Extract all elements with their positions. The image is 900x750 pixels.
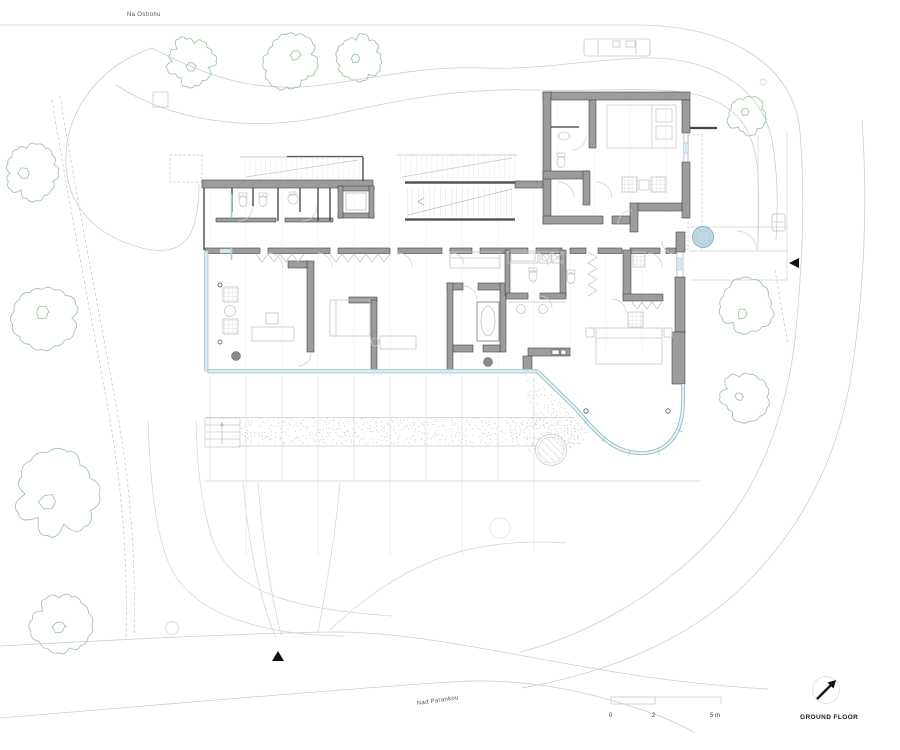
floor-title: GROUND FLOOR <box>800 714 858 721</box>
tree <box>719 277 774 334</box>
armchair <box>628 312 643 327</box>
entry-pad-dashed <box>170 155 202 182</box>
scale-tick-0: 0 <box>609 713 613 719</box>
armchair <box>651 177 666 192</box>
bed-2 <box>330 300 370 336</box>
bed-guest <box>607 105 676 148</box>
tree <box>166 37 216 88</box>
scale-bar <box>611 697 721 704</box>
parked-car <box>584 39 650 56</box>
tree <box>15 448 100 537</box>
armchair <box>223 319 238 334</box>
central-staircase <box>405 183 515 220</box>
wardrobe-zigzags <box>256 252 662 309</box>
north-indicator <box>813 677 840 704</box>
site-plan-drawing: Na Ostrohu Nad Paťankou GROUND FLOOR 0 2… <box>0 0 900 750</box>
tree <box>6 143 58 202</box>
scale-tick-2: 2 <box>652 713 656 719</box>
round-planter <box>536 435 567 466</box>
path-circle <box>166 622 179 635</box>
tree <box>29 594 93 654</box>
tree <box>11 287 79 350</box>
elevator-cab <box>346 193 366 210</box>
entrance-markers <box>272 258 799 661</box>
street-label-bottom: Nad Paťankou <box>416 695 459 707</box>
tree <box>336 34 382 82</box>
armchair <box>622 177 637 192</box>
labels: Na Ostrohu Nad Paťankou GROUND FLOOR 0 2… <box>127 12 858 721</box>
walls-thick <box>202 92 690 384</box>
garden-circle <box>490 518 510 538</box>
shelf-grid <box>633 252 645 267</box>
floor-plan-canvas: Na Ostrohu Nad Paťankou GROUND FLOOR 0 2… <box>0 0 900 750</box>
tree <box>263 33 318 90</box>
armchair <box>223 287 238 302</box>
bathtub <box>477 302 499 341</box>
road-bottom-edge1 <box>0 632 768 689</box>
toilet <box>239 192 298 207</box>
exterior-stairs <box>240 155 517 179</box>
road-bottom-edge2 <box>0 681 695 733</box>
gate-box <box>772 214 785 231</box>
gravel-stipple <box>237 380 588 453</box>
east-entry-court <box>690 79 788 280</box>
building <box>202 92 690 456</box>
entrance-triangle-south <box>272 651 284 661</box>
entrance-triangle-east <box>789 258 799 268</box>
site-roads <box>0 25 865 733</box>
scale-tick-5m: 5 m <box>710 713 720 719</box>
drive-loop <box>66 48 199 250</box>
garden-paths <box>148 420 565 638</box>
tree <box>720 373 770 423</box>
street-label-top: Na Ostrohu <box>127 12 161 18</box>
